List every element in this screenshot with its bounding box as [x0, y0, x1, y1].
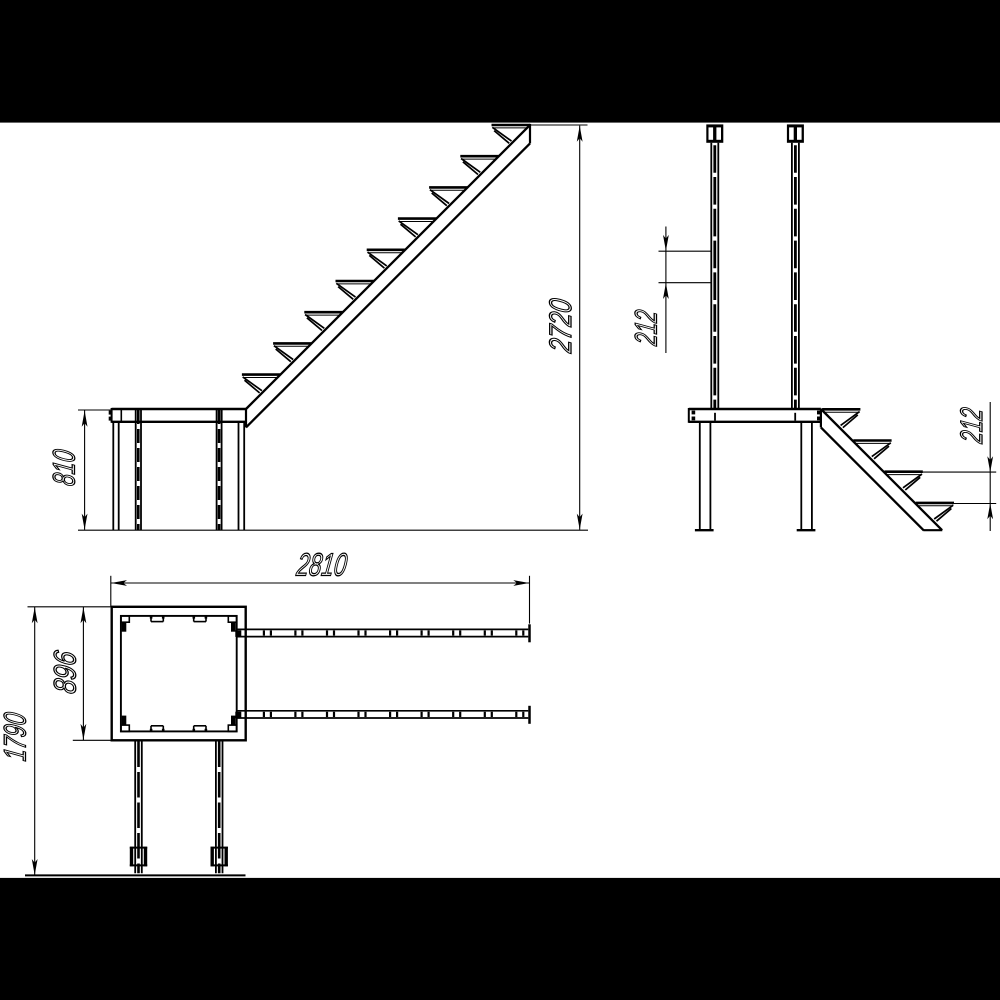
- svg-text:212: 212: [629, 308, 664, 348]
- svg-text:896: 896: [47, 648, 82, 696]
- svg-text:810: 810: [47, 447, 82, 487]
- svg-text:2810: 2810: [294, 547, 349, 583]
- svg-text:2720: 2720: [543, 297, 578, 356]
- svg-text:1790: 1790: [0, 710, 33, 763]
- svg-text:212: 212: [954, 406, 989, 446]
